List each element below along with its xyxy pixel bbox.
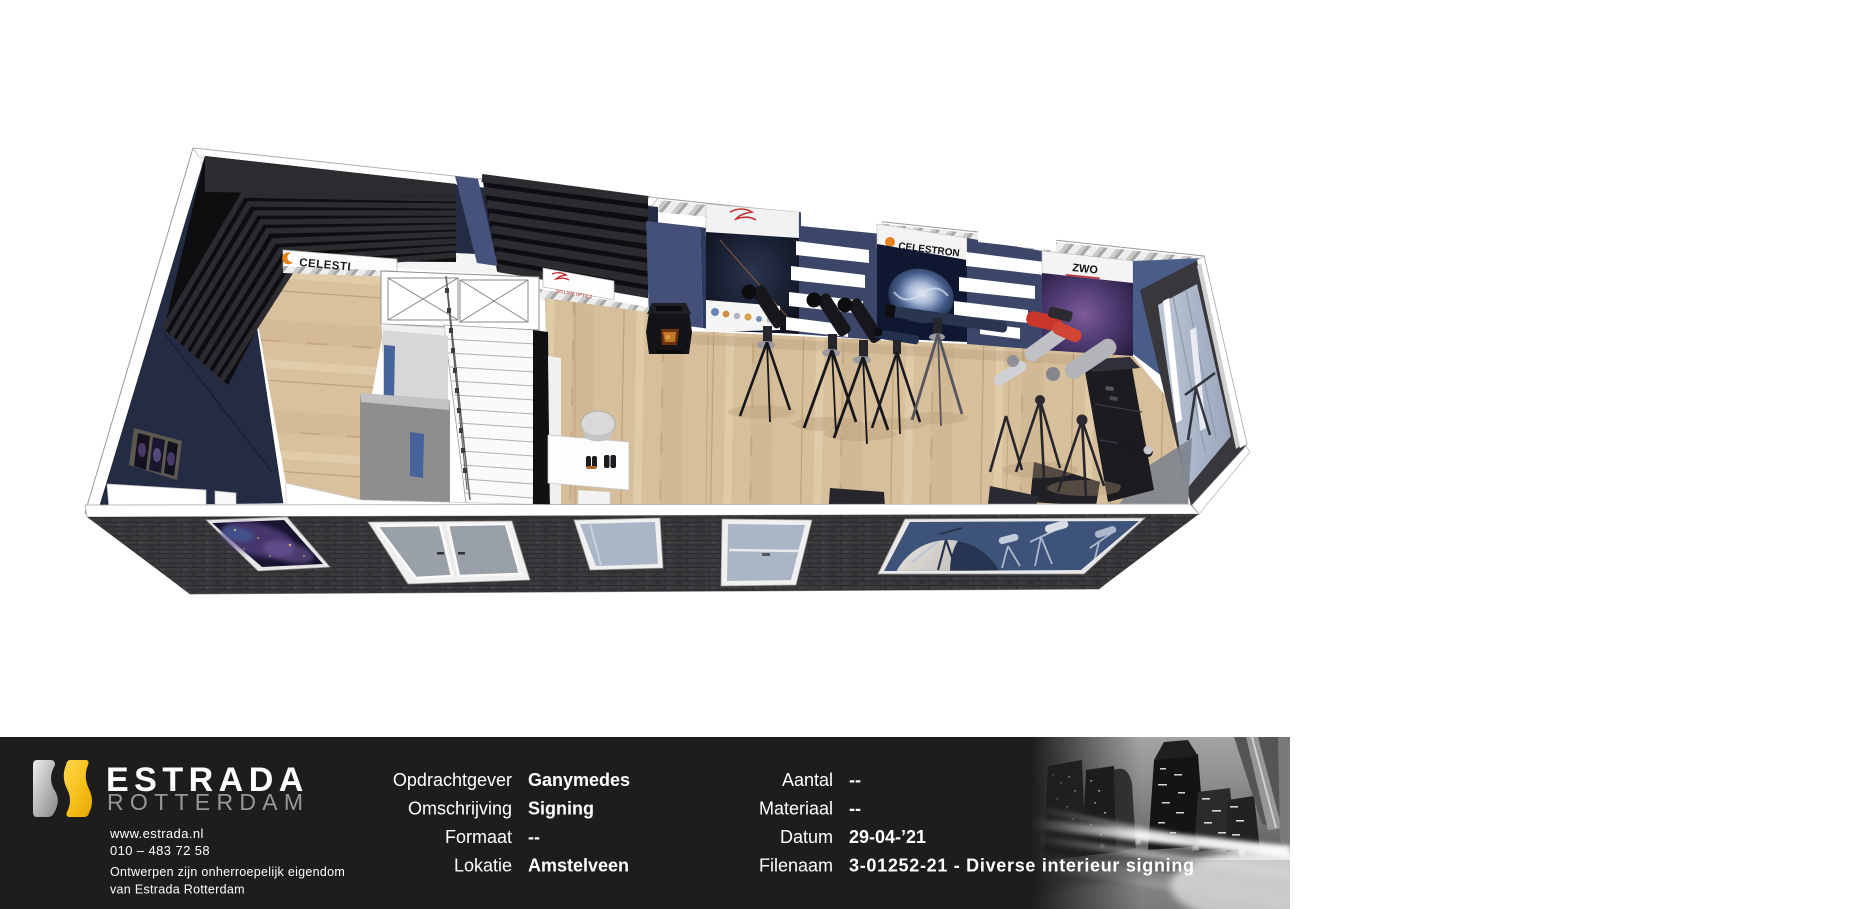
svg-text:Aantal: Aantal — [782, 770, 833, 790]
svg-text:Amstelveen: Amstelveen — [528, 856, 629, 876]
svg-text:Ganymedes: Ganymedes — [528, 770, 630, 790]
svg-text:ROTTERDAM: ROTTERDAM — [107, 789, 309, 815]
svg-text:Filenaam: Filenaam — [759, 856, 833, 876]
svg-text:Signing: Signing — [528, 799, 594, 819]
svg-text:Ontwerpen zijn onherroepelijk: Ontwerpen zijn onherroepelijk eigendom — [110, 865, 345, 879]
svg-text:--: -- — [849, 799, 861, 819]
svg-text:010 – 483 72 58: 010 – 483 72 58 — [110, 843, 210, 858]
svg-text:van Estrada Rotterdam: van Estrada Rotterdam — [110, 883, 245, 897]
svg-text:3-01252-21 - Diverse interieur: 3-01252-21 - Diverse interieur signing — [849, 856, 1195, 876]
svg-text:Opdrachtgever: Opdrachtgever — [393, 770, 512, 790]
svg-text:Lokatie: Lokatie — [454, 856, 512, 876]
svg-text:Omschrijving: Omschrijving — [408, 799, 512, 819]
svg-text:--: -- — [528, 827, 540, 847]
svg-text:29-04-’21: 29-04-’21 — [849, 827, 926, 847]
svg-text:www.estrada.nl: www.estrada.nl — [109, 826, 204, 841]
svg-text:--: -- — [849, 770, 861, 790]
svg-text:Formaat: Formaat — [445, 827, 512, 847]
svg-text:Datum: Datum — [780, 827, 833, 847]
svg-text:Materiaal: Materiaal — [759, 799, 833, 819]
